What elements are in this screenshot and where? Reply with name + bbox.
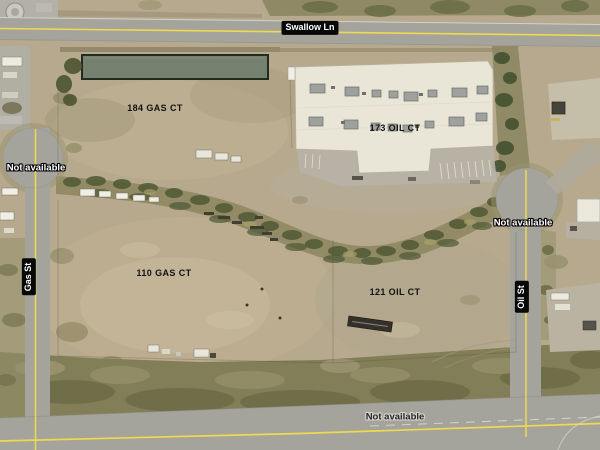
left-culdesac xyxy=(3,128,63,188)
aerial-imagery xyxy=(0,0,600,450)
warehouse-building xyxy=(288,61,497,186)
right-culdesac xyxy=(496,168,558,230)
aerial-map-canvas[interactable]: Swallow Ln Gas St Oil St Not available N… xyxy=(0,0,600,450)
